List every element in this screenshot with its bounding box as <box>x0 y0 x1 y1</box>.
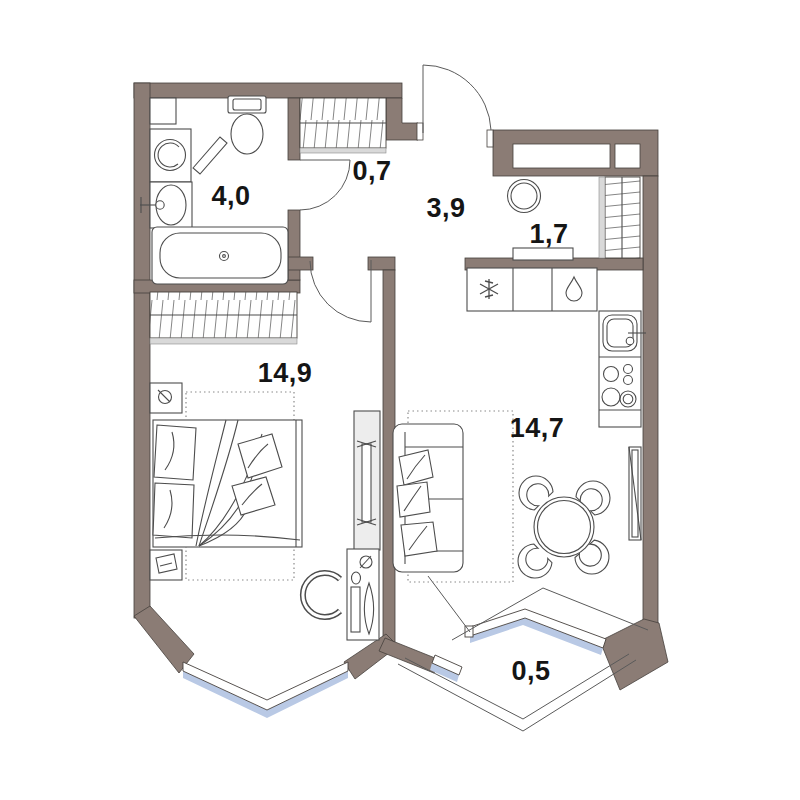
entry-threshold-right <box>487 130 493 147</box>
room-label-bedroom: 14,9 <box>258 358 313 388</box>
wall-balcony-corner-right <box>600 619 668 690</box>
bathroom-door-swing <box>300 160 350 210</box>
nightstand-book-icon <box>150 550 182 580</box>
bedroom-door-swing <box>310 261 371 322</box>
floor-plan: 4,0 0,7 3,9 1,7 14,9 14,7 0,5 <box>0 0 800 800</box>
wall-right <box>643 176 658 624</box>
wall-left <box>134 83 150 618</box>
dining-table-icon <box>534 497 594 557</box>
bedroom-wardrobe-rail <box>150 338 297 344</box>
toilet-icon <box>228 96 266 154</box>
wall-duct-niche-2 <box>615 144 640 168</box>
wall-duct-niche-1 <box>513 144 610 168</box>
boiler-icon <box>508 180 541 213</box>
room-label-balcony: 0,5 <box>511 656 550 686</box>
room-label-living-kitchen: 14,7 <box>510 413 565 443</box>
wall-entry-jamb-left <box>386 98 418 140</box>
wall-hall-stub <box>288 257 313 270</box>
wall-partition-cap <box>368 257 395 270</box>
pantry-shelf <box>513 248 573 260</box>
wall-top <box>134 83 402 98</box>
room-label-pantry: 1,7 <box>529 219 568 249</box>
hall-closet-rail <box>300 148 386 153</box>
radiator-icon <box>629 447 641 540</box>
room-label-bathroom: 4,0 <box>211 181 250 211</box>
nightstand-lamp-icon <box>150 383 182 413</box>
entry-threshold-left <box>417 123 423 140</box>
washing-machine-icon <box>150 129 227 182</box>
desk-icon <box>347 549 379 640</box>
pantry-wardrobe-rail <box>599 177 605 258</box>
kitchen <box>467 268 646 427</box>
tv-icon <box>362 444 371 522</box>
sofa-icon <box>393 424 463 572</box>
wall-bathroom-right-upper <box>288 98 300 160</box>
duct-shaft-icon <box>150 98 176 124</box>
balcony-door-leaf <box>428 576 470 632</box>
room-label-hall-closet: 0,7 <box>352 156 391 186</box>
room-label-hallway: 3,9 <box>426 193 465 223</box>
desk-chair-icon <box>303 573 340 617</box>
bathtub-icon <box>152 227 288 284</box>
entrance-door-swing <box>423 65 491 130</box>
tv-console <box>354 411 380 550</box>
bedroom <box>150 383 380 640</box>
bed-icon <box>153 420 302 547</box>
kitchen-counter-top-row <box>467 268 597 311</box>
walls <box>134 83 668 690</box>
